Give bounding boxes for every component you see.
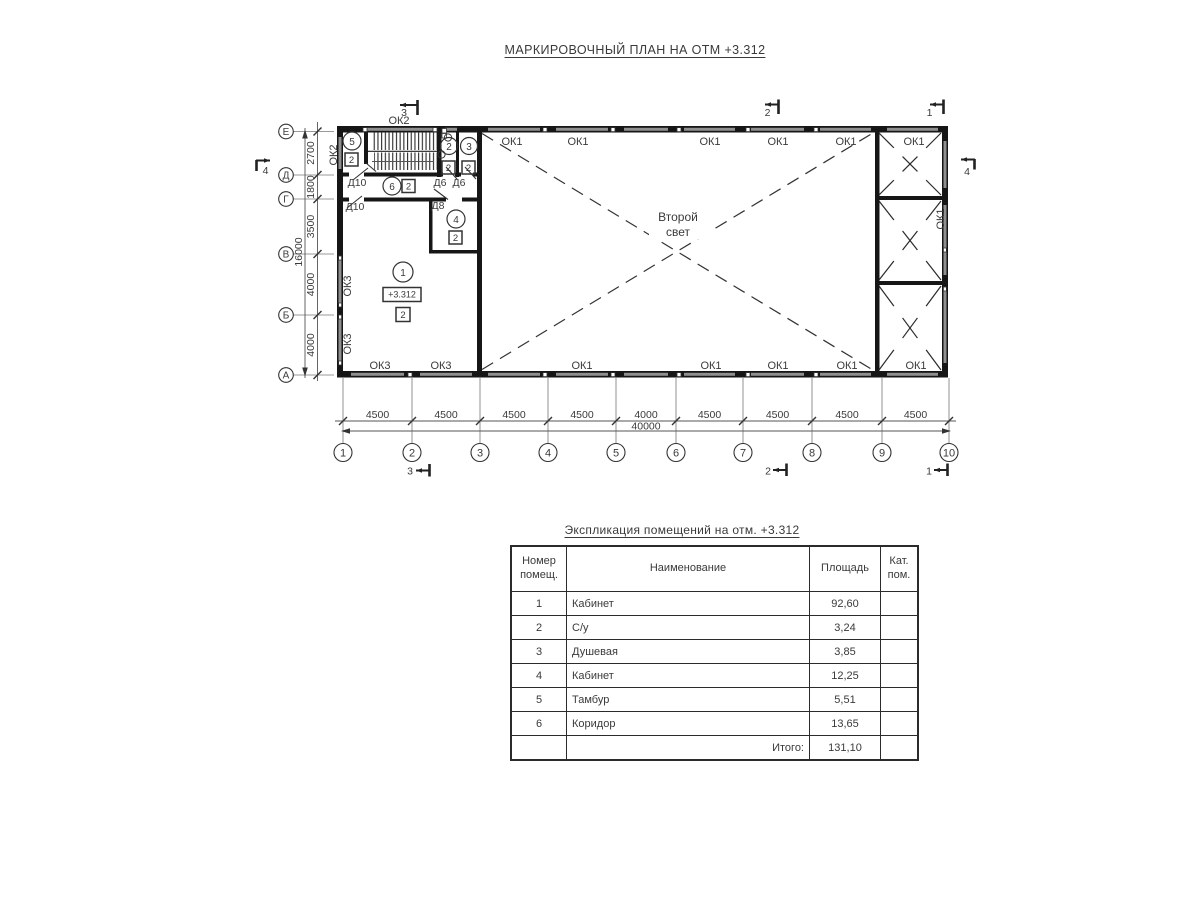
room-number: 3 bbox=[466, 142, 472, 153]
axis-row-label: Г bbox=[283, 195, 289, 206]
dim-left: 4000 bbox=[305, 333, 317, 357]
room-number-cell: 3 bbox=[511, 640, 567, 664]
dim-bottom-total: 40000 bbox=[631, 421, 660, 433]
room-explication-table: Номер помещ. Наименование Площадь Кат. п… bbox=[510, 545, 919, 761]
dim-bottom: 4500 bbox=[766, 409, 790, 421]
axis-row-label: А bbox=[283, 371, 290, 382]
axis-col-label: 3 bbox=[477, 448, 483, 460]
d8-label: Д8 bbox=[432, 200, 445, 212]
table-row: 5 Тамбур 5,51 bbox=[511, 688, 918, 712]
room-name-cell: Коридор bbox=[567, 712, 810, 736]
axis-col-label: 8 bbox=[809, 448, 815, 460]
drawing-sheet: МАРКИРОВОЧНЫЙ ПЛАН НА ОТМ +3.312 bbox=[0, 0, 1200, 900]
ok1-label: ОК1 bbox=[836, 360, 857, 372]
section-mark-label: 1 bbox=[926, 466, 932, 478]
room-area-cell: 12,25 bbox=[810, 664, 881, 688]
ok1-label: ОК1 bbox=[935, 208, 947, 229]
ok3-label: ОК3 bbox=[342, 275, 354, 296]
header-room-category: Кат. пом. bbox=[881, 546, 919, 592]
room-category: 2 bbox=[453, 233, 458, 244]
bottom-dimensions: 4500 4500 4500 4500 4000 4500 4500 4500 … bbox=[335, 378, 956, 443]
ok1-label: ОК1 bbox=[903, 136, 924, 148]
row-axis-bubbles: Е Д Г В Б А bbox=[279, 124, 294, 382]
room-area-cell: 13,65 bbox=[810, 712, 881, 736]
section-mark-label: 4 bbox=[263, 165, 269, 177]
ok1-label: ОК1 bbox=[835, 136, 856, 148]
stair bbox=[368, 132, 437, 170]
table-row: 2 С/у 3,24 bbox=[511, 616, 918, 640]
room-number-cell: 6 bbox=[511, 712, 567, 736]
ok1-label: ОК1 bbox=[905, 360, 926, 372]
table-title: Экспликация помещений на отм. +3.312 bbox=[565, 523, 800, 537]
section-mark-label: 2 bbox=[765, 466, 771, 478]
room-number: 1 bbox=[400, 268, 406, 279]
ok3-label: ОК3 bbox=[430, 360, 451, 372]
room-category-cell bbox=[881, 592, 919, 616]
total-empty-cell bbox=[511, 736, 567, 761]
dim-left: 3500 bbox=[305, 215, 317, 239]
dim-bottom: 4500 bbox=[904, 409, 928, 421]
axis-col-label: 2 bbox=[409, 448, 415, 460]
axis-col-label: 5 bbox=[613, 448, 619, 460]
dim-bottom: 4500 bbox=[698, 409, 722, 421]
room-category: 2 bbox=[466, 163, 471, 174]
ok1-label: ОК1 bbox=[571, 360, 592, 372]
ok1-label: ОК1 bbox=[700, 360, 721, 372]
room-name-cell: С/у bbox=[567, 616, 810, 640]
dim-left-total: 16000 bbox=[293, 237, 305, 266]
ok1-label: ОК1 bbox=[501, 136, 522, 148]
room-area-cell: 92,60 bbox=[810, 592, 881, 616]
room-category: 2 bbox=[446, 163, 451, 174]
room-number: 6 bbox=[389, 182, 395, 193]
second-light-label-line1: Второй bbox=[658, 210, 698, 224]
room-name-cell: Тамбур bbox=[567, 688, 810, 712]
axis-col-label: 1 bbox=[340, 448, 346, 460]
room-area-cell: 3,85 bbox=[810, 640, 881, 664]
room-area-cell: 3,24 bbox=[810, 616, 881, 640]
room-category-cell bbox=[881, 664, 919, 688]
room-number-cell: 5 bbox=[511, 688, 567, 712]
ok3-label: ОК3 bbox=[369, 360, 390, 372]
axis-row-label: Д bbox=[283, 171, 290, 182]
second-light-cross bbox=[482, 134, 872, 370]
section-mark-label: 3 bbox=[401, 107, 407, 119]
second-light-label-line2: свет bbox=[666, 225, 691, 239]
room-name-cell: Душевая bbox=[567, 640, 810, 664]
dim-left: 1800 bbox=[305, 175, 317, 199]
room-number-cell: 1 bbox=[511, 592, 567, 616]
ok2-label: ОК2 bbox=[328, 144, 340, 165]
axis-row-label: Е bbox=[283, 127, 290, 138]
axis-row-label: В bbox=[283, 250, 290, 261]
header-room-name: Наименование bbox=[567, 546, 810, 592]
room-category: 2 bbox=[349, 155, 354, 166]
table-total-row: Итого: 131,10 bbox=[511, 736, 918, 761]
room-category-cell bbox=[881, 688, 919, 712]
room-number-cell: 2 bbox=[511, 616, 567, 640]
ok1-label: ОК1 bbox=[699, 136, 720, 148]
dim-bottom: 4500 bbox=[570, 409, 594, 421]
section-mark-label: 3 bbox=[407, 466, 413, 478]
room-name-cell: Кабинет bbox=[567, 592, 810, 616]
dim-bottom: 4500 bbox=[502, 409, 526, 421]
room-category-cell bbox=[881, 712, 919, 736]
room-number: 2 bbox=[446, 142, 452, 153]
dim-bottom: 4000 bbox=[634, 409, 658, 421]
room-number: 5 bbox=[349, 137, 355, 148]
dim-left: 2700 bbox=[305, 141, 317, 165]
axis-row-label: Б bbox=[283, 311, 290, 322]
axis-col-label: 10 bbox=[943, 448, 955, 460]
total-category-cell bbox=[881, 736, 919, 761]
dim-bottom: 4500 bbox=[366, 409, 390, 421]
elevation-mark: +3.312 bbox=[388, 290, 416, 300]
dim-bottom: 4500 bbox=[434, 409, 458, 421]
dim-bottom: 4500 bbox=[835, 409, 859, 421]
room-category: 2 bbox=[406, 182, 411, 193]
col-axis-bubbles: 1 2 3 4 5 6 7 8 9 10 bbox=[334, 444, 958, 462]
table-header-row: Номер помещ. Наименование Площадь Кат. п… bbox=[511, 546, 918, 592]
section-mark-label: 4 bbox=[964, 166, 970, 178]
ok3-label: ОК3 bbox=[342, 333, 354, 354]
room-number: 4 bbox=[453, 215, 459, 226]
ok1-label: ОК1 bbox=[567, 136, 588, 148]
table-row: 3 Душевая 3,85 bbox=[511, 640, 918, 664]
room-area-cell: 5,51 bbox=[810, 688, 881, 712]
ok1-label: ОК1 bbox=[767, 360, 788, 372]
room-category-cell bbox=[881, 640, 919, 664]
ok1-label: ОК1 bbox=[767, 136, 788, 148]
table-row: 6 Коридор 13,65 bbox=[511, 712, 918, 736]
d6-label: Д6 bbox=[453, 177, 466, 189]
axis-col-label: 7 bbox=[740, 448, 746, 460]
section-mark-label: 2 bbox=[765, 107, 771, 119]
room-category-cell bbox=[881, 616, 919, 640]
floor-plan: Второй свет ОК1 ОК1 ОК1 ОК1 ОК1 ОК1 ОК1 … bbox=[0, 0, 1200, 900]
axis-col-label: 4 bbox=[545, 448, 551, 460]
header-room-area: Площадь bbox=[810, 546, 881, 592]
d10-label: Д10 bbox=[346, 201, 365, 213]
section-mark-label: 1 bbox=[927, 107, 933, 119]
total-label-cell: Итого: bbox=[567, 736, 810, 761]
d6-label: Д6 bbox=[434, 177, 447, 189]
right-block-crosses bbox=[879, 133, 941, 370]
room-name-cell: Кабинет bbox=[567, 664, 810, 688]
d10-label: Д10 bbox=[348, 177, 367, 189]
axis-col-label: 9 bbox=[879, 448, 885, 460]
header-room-number: Номер помещ. bbox=[511, 546, 567, 592]
axis-col-label: 6 bbox=[673, 448, 679, 460]
total-value-cell: 131,10 bbox=[810, 736, 881, 761]
table-row: 4 Кабинет 12,25 bbox=[511, 664, 918, 688]
table-row: 1 Кабинет 92,60 bbox=[511, 592, 918, 616]
dim-left: 4000 bbox=[305, 273, 317, 297]
room-number-cell: 4 bbox=[511, 664, 567, 688]
room-category: 2 bbox=[400, 310, 405, 321]
